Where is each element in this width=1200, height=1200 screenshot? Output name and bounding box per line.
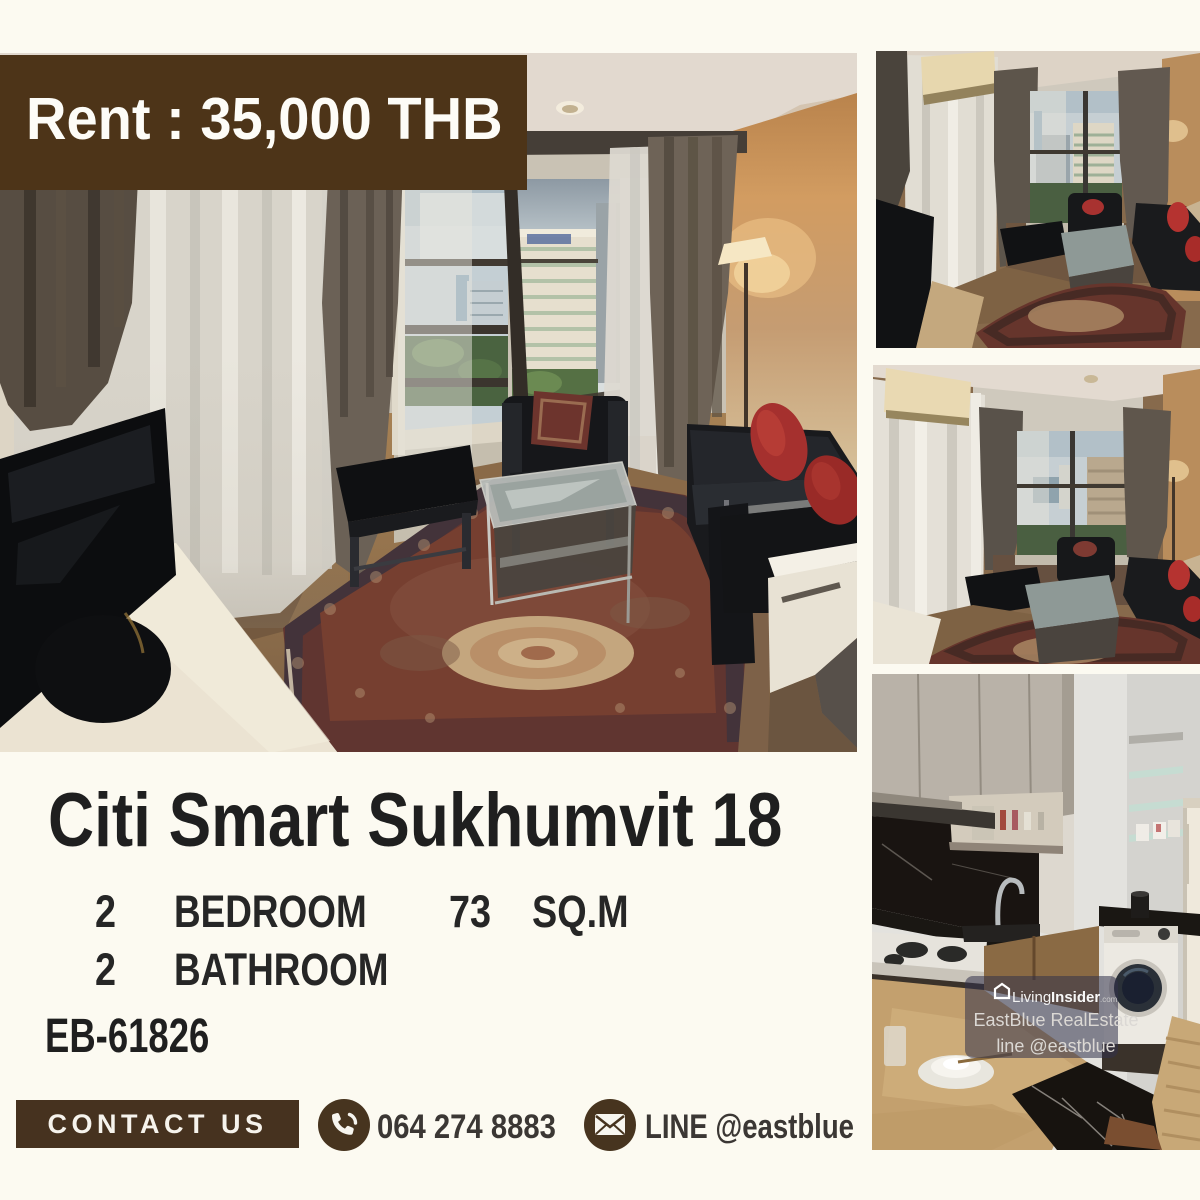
svg-text:.com: .com	[1100, 995, 1118, 1004]
svg-text:Living: Living	[1012, 989, 1051, 1006]
svg-text:line @eastblue: line @eastblue	[996, 1036, 1115, 1056]
svg-text:EastBlue RealEstate: EastBlue RealEstate	[973, 1010, 1138, 1030]
svg-text:Insider: Insider	[1051, 989, 1100, 1006]
